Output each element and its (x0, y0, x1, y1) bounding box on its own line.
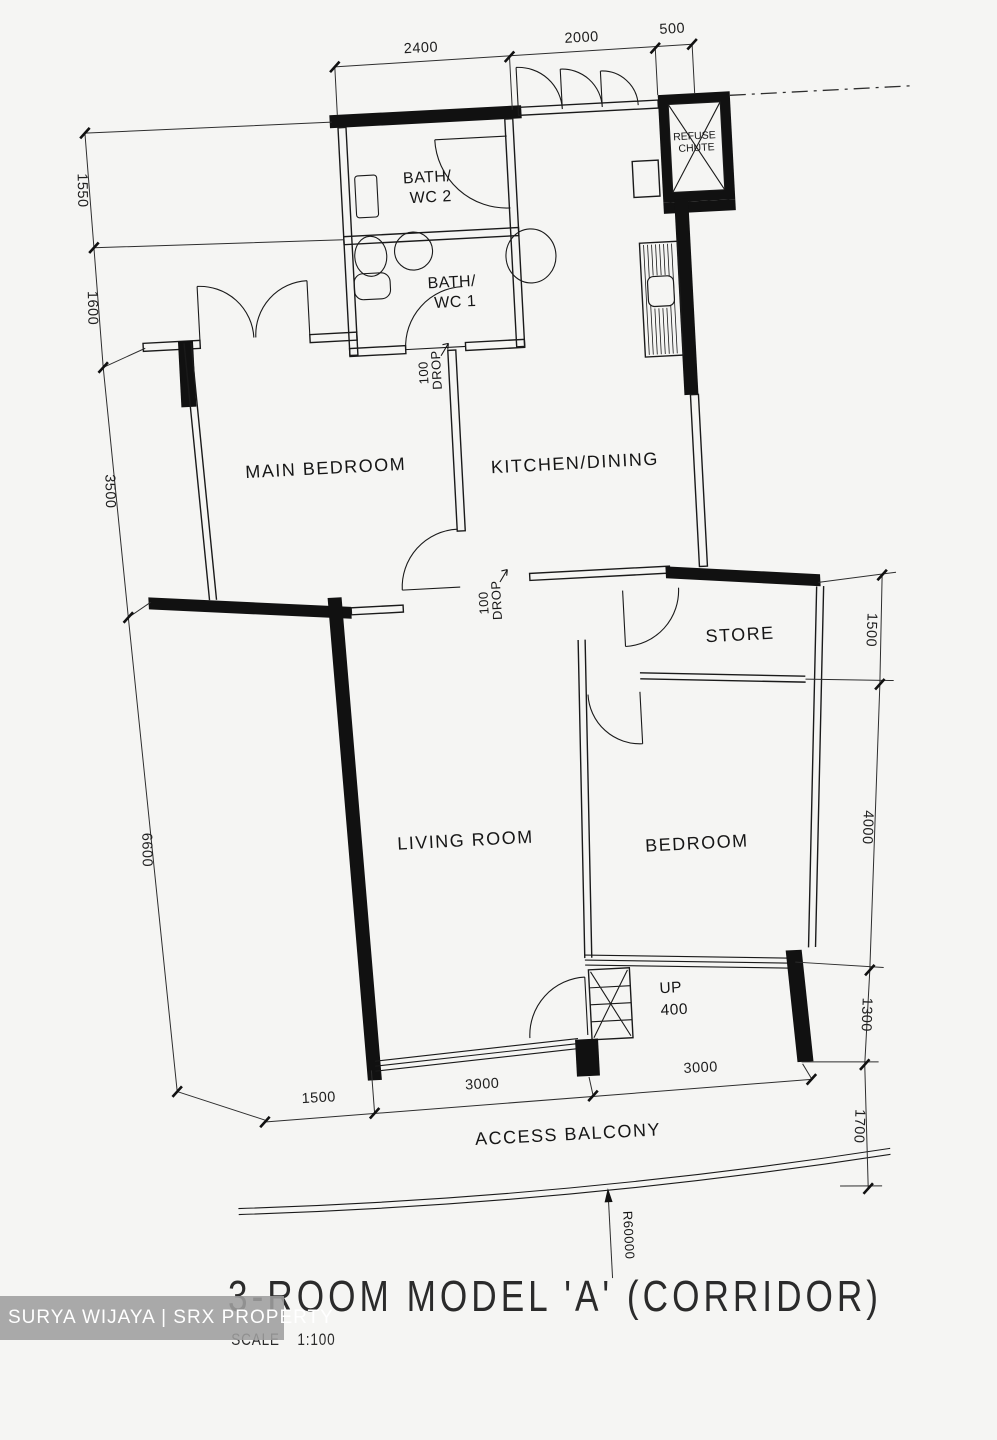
dim-right-1300: 1300 (858, 997, 875, 1032)
label-kitchen-dining: KITCHEN/DINING (490, 449, 659, 478)
wall-living-left-thick (328, 597, 382, 1082)
wall-bath-top-thick (329, 105, 521, 128)
label-drop1: 100 DROP (415, 350, 445, 391)
dimension-right-chain: 1500 4000 1300 1700 (775, 569, 928, 1196)
label-drop2-line2: DROP (488, 580, 505, 620)
wall-bedroom-right (790, 586, 843, 947)
kitchen-east-wall (637, 199, 707, 569)
party-wall-centerline (730, 86, 911, 95)
drop2-arrow-icon (499, 570, 508, 582)
label-bath-wc2-line1: BATH/ (403, 168, 452, 188)
wall-store-bottom (640, 664, 806, 691)
pillar-living-bottom (575, 1038, 600, 1076)
wall-living-bedroom (568, 640, 602, 958)
radius-arrow-line (608, 1196, 612, 1278)
dim-bottom-1500: 1500 (301, 1089, 336, 1107)
label-store: STORE (705, 623, 775, 647)
label-up: UP 400 (659, 979, 688, 1019)
wall-main-bedroom-top-right (310, 332, 357, 342)
wc2-cistern (355, 175, 379, 218)
wall-main-bedroom-bottom-thin (351, 605, 403, 615)
scale-value: 1:100 (297, 1330, 335, 1349)
dim-left-1600: 1600 (84, 291, 101, 326)
main-bedroom-double-door-swing (197, 281, 310, 341)
refuse-chute: REFUSE CHUTE (629, 82, 917, 216)
annotation-drop1: 100 DROP (414, 343, 450, 390)
store-door-swing (623, 588, 682, 647)
dim-bottom-3000b: 3000 (683, 1059, 718, 1077)
corridor-curve-inner (237, 1154, 892, 1215)
dim-right-4000: 4000 (859, 810, 876, 845)
annotation-drop2: 100 DROP (474, 570, 510, 621)
label-bedroom: BEDROOM (645, 830, 749, 855)
wall-corridor-entrance (518, 100, 658, 115)
stairs-treads (589, 970, 633, 1038)
drawing-scale: SCALE1:100 (231, 1330, 836, 1350)
label-access-balcony: ACCESS BALCONY (475, 1119, 662, 1149)
wall-kitchen-right (690, 394, 707, 566)
watermark-banner: SURYA WIJAYA | SRX PROPERTY (0, 1296, 284, 1340)
dim-left-3500: 3500 (101, 474, 118, 509)
dim-right-1500: 1500 (862, 613, 879, 648)
dim-bottom-3000a: 3000 (465, 1076, 500, 1094)
main-bedroom-door-swing (399, 529, 460, 590)
bedroom-door-swing (588, 692, 643, 747)
wall-kitchen-right-thick (674, 199, 698, 395)
floorplan-drawing: REFUSE CHUTE (0, 0, 997, 1440)
wc1-basin (394, 231, 434, 271)
dimension-bottom-chain: 1500 3000 3000 (258, 1047, 818, 1127)
dimension-top-chain: 2400 2000 500 (328, 20, 700, 119)
dim-top-2000: 2000 (564, 29, 599, 47)
refuse-chute-label-line2: CHUTE (678, 141, 715, 155)
wall-store-top-thick (665, 558, 820, 594)
label-bath-wc1: BATH/ WC 1 (427, 273, 482, 313)
label-drop2: 100 DROP (475, 580, 505, 621)
label-main-bedroom: MAIN BEDROOM (245, 454, 407, 482)
label-drop1-line2: DROP (428, 350, 445, 390)
refuse-chute-label: REFUSE CHUTE (673, 129, 720, 155)
living-balcony-window (374, 1039, 579, 1072)
watermark-text: SURYA WIJAYA | SRX PROPERTY (8, 1307, 334, 1328)
dim-left-1550: 1550 (74, 173, 91, 208)
wall-main-bedroom-bottom-thick (148, 587, 351, 630)
label-bath-wc1-line1: BATH/ (427, 273, 476, 293)
dim-left-6600: 6600 (138, 833, 155, 868)
wall-bath-right (505, 119, 525, 347)
label-radius: R60000 (620, 1211, 638, 1260)
wc1-toilet-bowl (354, 236, 388, 278)
living-entry-door-swing (527, 977, 588, 1038)
label-bath-wc2-line2: WC 2 (409, 188, 452, 207)
wall-main-bedroom-right (448, 350, 465, 531)
store-bedroom-walls (530, 558, 849, 1075)
dim-right-1700: 1700 (850, 1109, 867, 1144)
wall-kitchen-bottom (530, 566, 670, 580)
label-up-line1: UP (659, 979, 682, 997)
doors (187, 60, 702, 1053)
dim-top-2400: 2400 (403, 40, 438, 58)
corridor-curve-outer (237, 1148, 892, 1209)
label-bath-wc1-line2: WC 1 (434, 293, 477, 312)
kitchen-sink-basin (647, 276, 675, 307)
refuse-chute-hopper (632, 160, 660, 197)
label-bath-wc2: BATH/ WC 2 (403, 168, 458, 208)
bedroom-balcony-window (585, 944, 794, 979)
label-up-line2: 400 (660, 1001, 688, 1019)
dim-top-500: 500 (659, 21, 686, 38)
wall-bath-left (338, 127, 358, 355)
pillar-bedroom-bottom (786, 949, 814, 1062)
label-living-room: LIVING ROOM (397, 827, 534, 854)
floorplan-page: REFUSE CHUTE (0, 0, 997, 1440)
